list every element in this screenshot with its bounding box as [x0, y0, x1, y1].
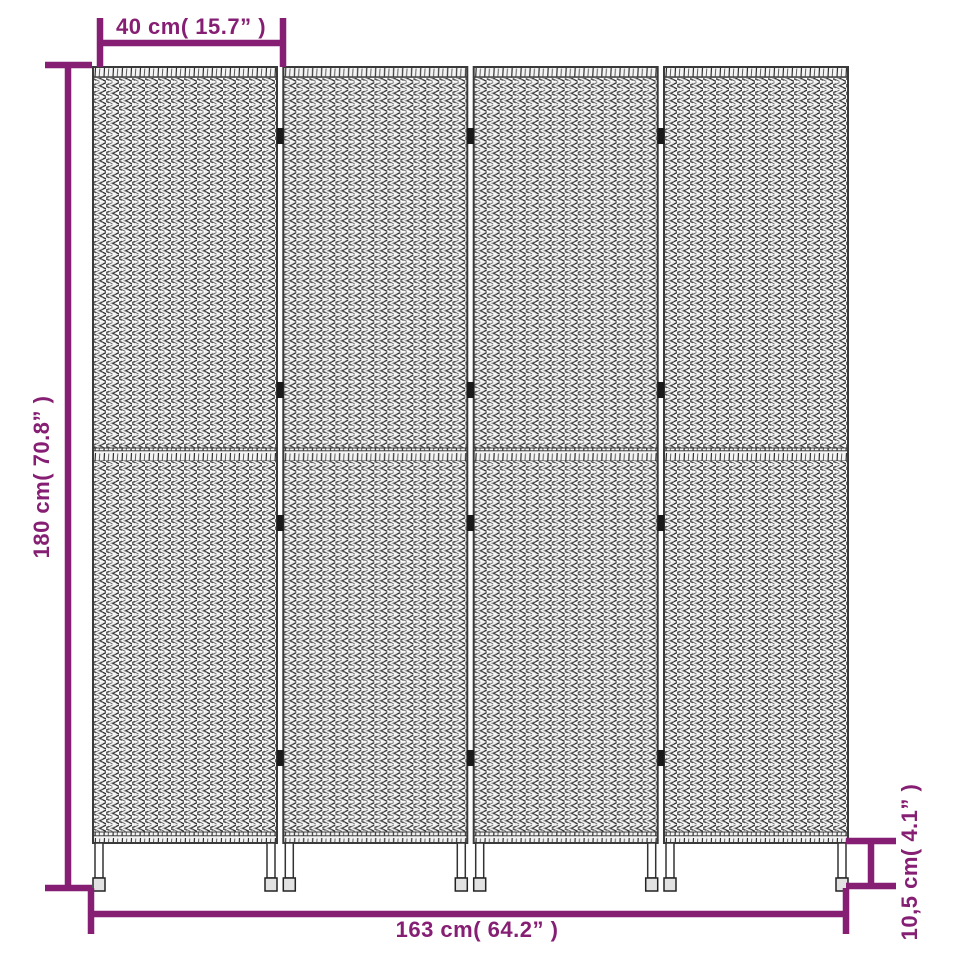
- dimension-line-leg-height: [846, 841, 896, 886]
- room-divider-illustration: [0, 0, 955, 955]
- divider-panel-2: [283, 67, 467, 891]
- divider-panel-3: [474, 67, 658, 891]
- dimension-diagram: 40 cm( 15.7” ) 180 cm( 70.8” ) 163 cm( 6…: [0, 0, 955, 955]
- divider-panel-1: [93, 67, 277, 891]
- dimension-label-height: 180 cm( 70.8” ): [31, 396, 53, 559]
- divider-panel-4: [664, 67, 848, 891]
- dimension-label-total-width: 163 cm( 64.2” ): [396, 919, 559, 941]
- dimension-label-leg-height: 10,5 cm( 4.1” ): [899, 784, 921, 941]
- dimension-label-panel-width: 40 cm( 15.7” ): [116, 16, 266, 38]
